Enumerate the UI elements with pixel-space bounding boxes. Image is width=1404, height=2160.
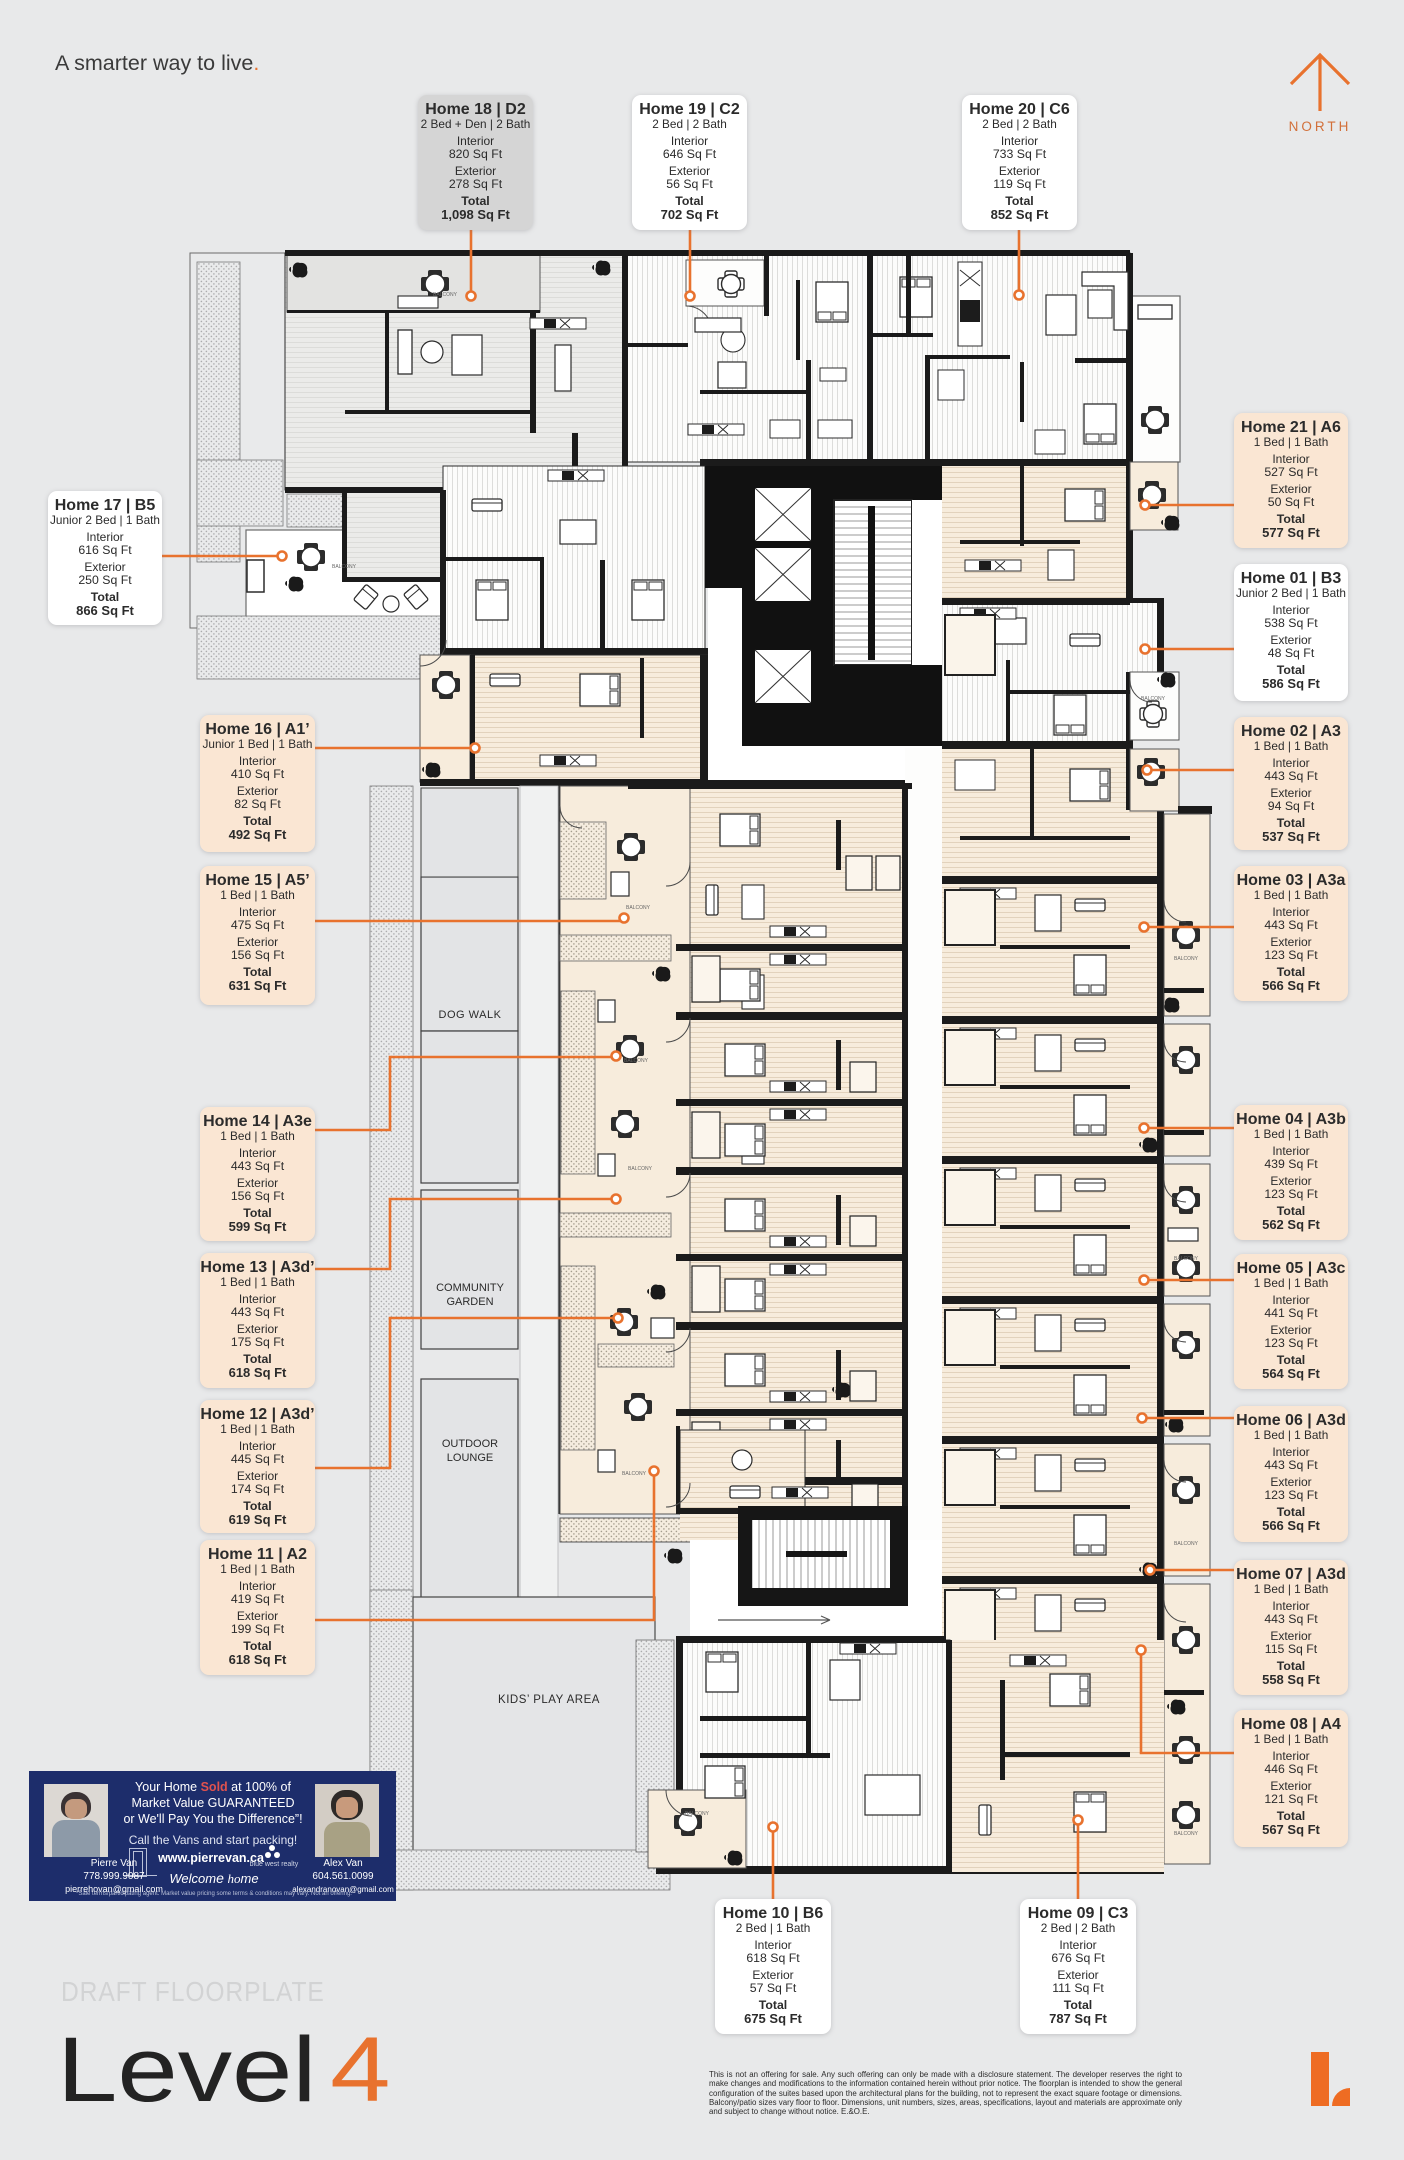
svg-text:BALCONY: BALCONY [1174, 956, 1199, 962]
svg-text:LOUNGE: LOUNGE [447, 1452, 493, 1464]
svg-text:BALCONY: BALCONY [626, 905, 651, 911]
svg-text:BALCONY: BALCONY [624, 1058, 649, 1064]
svg-text:BALCONY: BALCONY [1174, 1256, 1199, 1262]
svg-text:BALCONY: BALCONY [1174, 1831, 1199, 1837]
svg-text:BALCONY: BALCONY [433, 292, 458, 298]
svg-text:BALCONY: BALCONY [1141, 696, 1166, 702]
svg-text:BALCONY: BALCONY [332, 564, 357, 570]
svg-text:KIDS’ PLAY AREA: KIDS’ PLAY AREA [498, 1694, 600, 1706]
svg-text:BALCONY: BALCONY [622, 1471, 647, 1477]
svg-text:BALCONY: BALCONY [628, 1166, 653, 1172]
svg-text:GARDEN: GARDEN [446, 1296, 493, 1308]
svg-text:DOG WALK: DOG WALK [439, 1009, 502, 1021]
svg-text:COMMUNITY: COMMUNITY [436, 1282, 504, 1294]
svg-text:BALCONY: BALCONY [1174, 1541, 1199, 1547]
svg-text:BALCONY: BALCONY [685, 1811, 710, 1817]
svg-text:OUTDOOR: OUTDOOR [442, 1438, 498, 1450]
